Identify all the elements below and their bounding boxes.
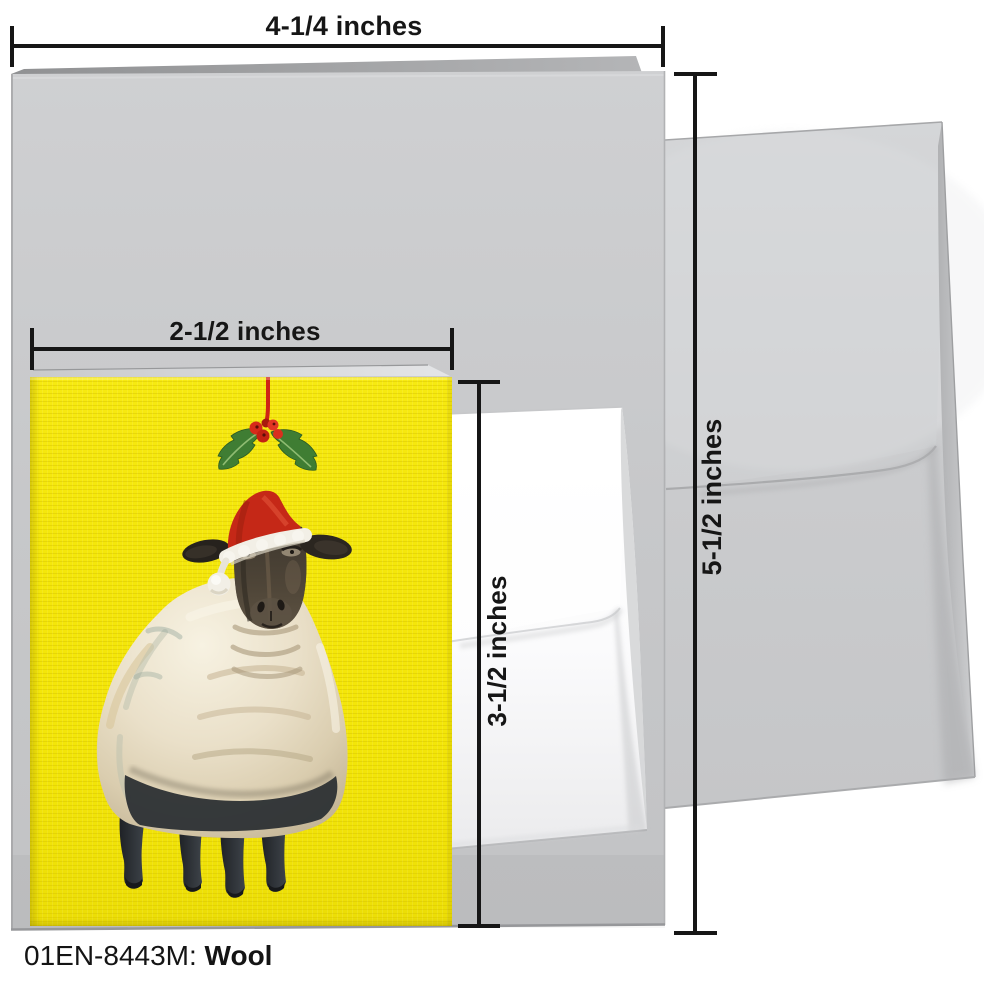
- mistletoe-string: [266, 377, 268, 424]
- large-card-inner-panel: [11, 56, 642, 74]
- mini-card-right-vignette: [447, 377, 452, 926]
- mini-card-front-artwork: [30, 377, 452, 926]
- sheep-cheek-highlight: [285, 560, 301, 594]
- mockup-scene: [0, 0, 984, 984]
- product-title: Wool: [205, 940, 273, 971]
- sheep-muzzle: [250, 598, 292, 628]
- dimension-label-mini-card-height: 3-1/2 inches: [482, 575, 512, 726]
- product-sku: 01EN-8443M:: [24, 940, 197, 971]
- product-caption: 01EN-8443M: Wool: [24, 940, 272, 972]
- mini-card: [30, 365, 452, 926]
- product-mockup-page: 4-1/4 inches 5-1/2 inches 2-1/2 inches 3…: [0, 0, 984, 984]
- dimension-label-card-width: 4-1/4 inches: [266, 11, 423, 41]
- mini-card-top-highlight: [30, 377, 452, 380]
- small-envelope-top-flap: [446, 407, 623, 642]
- small-envelope: [446, 407, 647, 849]
- mini-card-left-vignette: [30, 377, 40, 926]
- dimension-label-mini-card-width: 2-1/2 inches: [169, 316, 320, 346]
- dimension-label-card-height: 5-1/2 inches: [697, 419, 727, 576]
- santa-hat-pompom-highlight: [211, 575, 221, 585]
- mini-card-bottom-vignette: [30, 918, 452, 926]
